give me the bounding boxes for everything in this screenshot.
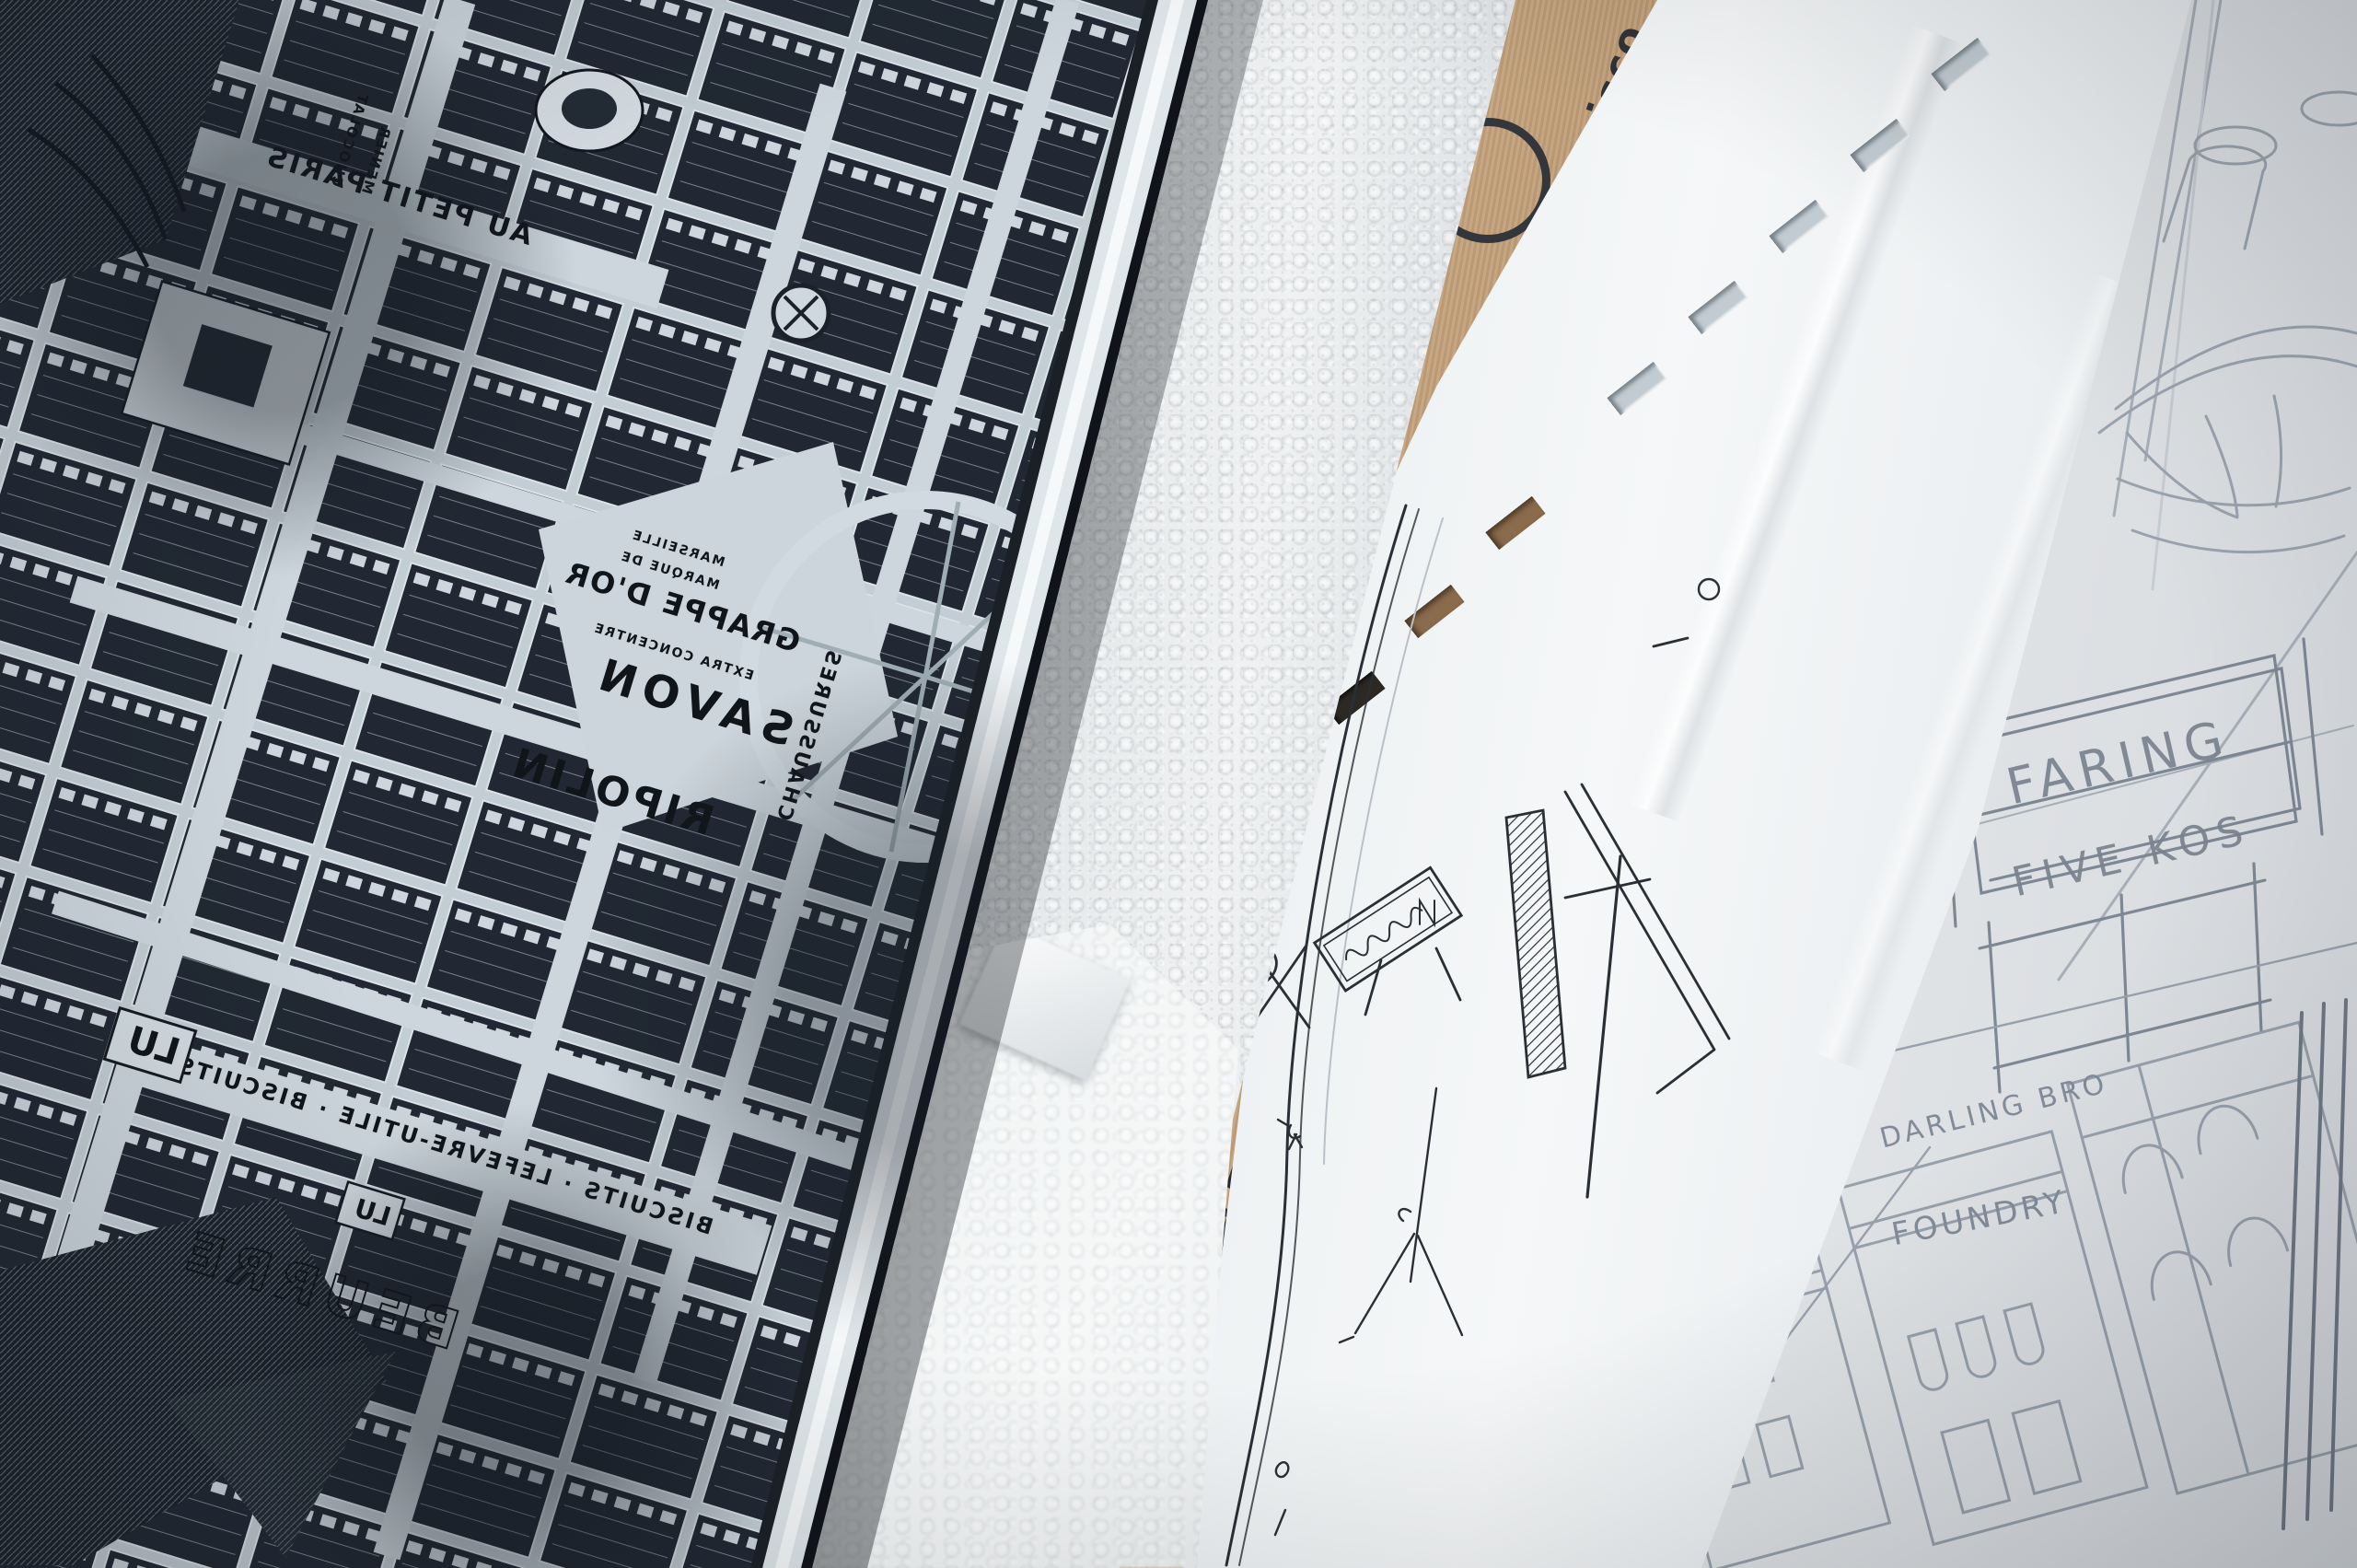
faring-sign-line1: FARING [2002,709,2236,817]
storefront-sign-sketch [1315,867,1462,991]
photo-scene: FARING FIVE KOS [0,0,2357,1568]
tiny-figure-sketch [1278,1120,1302,1149]
easel-pole-sketch [1340,1088,1462,1342]
